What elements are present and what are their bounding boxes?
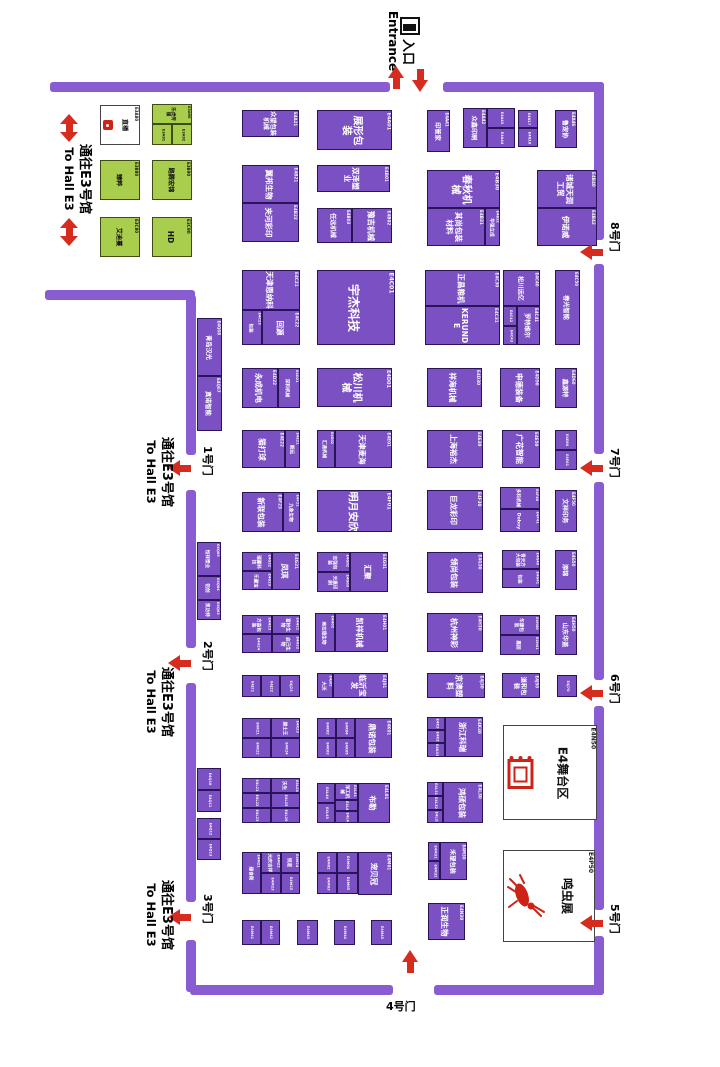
booth-code: E4C23 bbox=[257, 311, 262, 344]
booth-name: 元庆吉祥 bbox=[262, 853, 276, 872]
entrance-label-cn: 入口 bbox=[401, 39, 420, 65]
booth-E4Q03: E4Q03凯达特 bbox=[197, 600, 221, 620]
booth-code: E4Q08 bbox=[216, 319, 221, 375]
gate-label-1: 1号门 bbox=[200, 446, 216, 490]
booth-name: 多科机械 bbox=[501, 488, 535, 508]
booth-name: 乐虎传媒 bbox=[153, 105, 187, 123]
booth-E4A46: E4A46鲁宠协 bbox=[555, 110, 577, 148]
booth-E4H30: E4H30杭州神彩 bbox=[427, 613, 483, 652]
booth-code: E3B80 bbox=[134, 161, 139, 199]
booth-E4L31: E4L31 bbox=[427, 782, 443, 796]
booth-code: E4Q11 bbox=[207, 795, 211, 808]
booth-E4N50: E4N50E4舞台区 bbox=[503, 725, 597, 820]
booth-E4K02: E4K02 bbox=[317, 718, 336, 738]
booth-name: 直播 bbox=[113, 106, 134, 144]
booth-code: E4B22 bbox=[293, 204, 298, 241]
booth-code: E4B32 bbox=[495, 209, 500, 245]
booth-code: E4H01 bbox=[382, 614, 387, 651]
booth-name: 凤琪 bbox=[273, 553, 294, 589]
gate-label-4: 4号门 bbox=[386, 998, 416, 1014]
booth-code: E3A80 bbox=[134, 106, 139, 144]
booth-E4L24: E4L24沃生 bbox=[271, 778, 300, 793]
booth-code: E4Q03 bbox=[216, 601, 221, 619]
booth-name: 瑞赢科技 bbox=[243, 553, 267, 570]
booth-code: E4C30 bbox=[494, 271, 499, 305]
booth-E4B21: E4B21翼邦生物 bbox=[242, 165, 299, 203]
booth-name: 回源 bbox=[263, 311, 294, 344]
booth-E3B80: E3B80臻粹 bbox=[100, 160, 140, 200]
booth-name: 艾迪蔓 bbox=[101, 218, 134, 256]
to-hall-e3-cn: 通往E3号馆 bbox=[158, 437, 174, 507]
booth-name: 山东华盖 bbox=[556, 616, 571, 654]
booth-code: E4B40 bbox=[591, 171, 596, 207]
booth-E4G02: E4G02志强包装 bbox=[317, 552, 350, 572]
to-hall-e3-cn: 通往E3号馆 bbox=[158, 880, 174, 950]
booth-E4G03: E4G03天惠印刷 bbox=[317, 572, 350, 592]
booth-E3C90: E3C90HD bbox=[152, 217, 192, 257]
booth-name: 臻食帮 bbox=[243, 853, 256, 893]
hall-wall bbox=[50, 82, 390, 92]
entrance-door-icon bbox=[400, 17, 420, 35]
booth-name: 新联包装 bbox=[243, 493, 277, 531]
booth-E4D21: E4D21深和机械 bbox=[278, 368, 300, 408]
booth-name: 添锦 bbox=[556, 551, 571, 589]
booth-name: 明月安欣 bbox=[318, 491, 385, 531]
booth-code: E4N18 bbox=[526, 131, 530, 144]
booth-E4L01: E4L01布勒 bbox=[358, 783, 390, 823]
booth-code: E4F30 bbox=[477, 491, 482, 529]
booth-code: E4D50 bbox=[534, 369, 539, 406]
booth-E4H22: E4H22启己生物 bbox=[272, 634, 300, 653]
booth-code: E4L30 bbox=[477, 783, 482, 822]
booth-E4M44: E4M44 bbox=[334, 920, 355, 945]
booth-code: E4M43 bbox=[306, 926, 310, 939]
booth-name: 布勒 bbox=[359, 784, 384, 822]
booth-name: 凯祥机械 bbox=[336, 614, 382, 651]
booth-E4E30: E4E30上海裕杰 bbox=[427, 430, 483, 468]
booth-E4A44: E4A44 bbox=[487, 128, 515, 148]
booth-E3B90: E3B90路腾宏锦 bbox=[152, 160, 192, 200]
booth-E4Q04: E4Q04铝创 bbox=[197, 576, 221, 600]
booth-code: E4K21 bbox=[255, 722, 259, 734]
booth-E4L33: E4L33 bbox=[427, 810, 443, 823]
booth-name: 沃生 bbox=[272, 779, 295, 792]
booth-code: E4D01 bbox=[385, 369, 391, 406]
booth-name: 鲁宠协 bbox=[556, 111, 571, 147]
booth-code: E4A46 bbox=[571, 111, 576, 147]
booth-code: E4L42 bbox=[345, 801, 349, 811]
booth-code: E4M23 bbox=[269, 877, 273, 890]
booth-E4N17: E4N17 bbox=[518, 110, 538, 128]
booth-E4B22: E4B22夹河彩印 bbox=[242, 203, 299, 242]
booth-E4G22: E4G22瑞赢科技 bbox=[242, 552, 272, 571]
hall-wall bbox=[434, 985, 604, 995]
booth-name: 永成机电 bbox=[243, 369, 272, 407]
to-hall-e3-cn: 通往E3号馆 bbox=[76, 144, 92, 214]
booth-E4L26: E4L26 bbox=[271, 808, 300, 823]
booth-name: 道和包装 bbox=[503, 674, 534, 697]
booth-code: E4G40 bbox=[535, 551, 540, 568]
hall-wall bbox=[186, 490, 196, 648]
booth-code: E4M03 bbox=[325, 877, 329, 890]
booth-E4F40: E4F40多科机械 bbox=[500, 487, 540, 509]
booth-code: E4G21 bbox=[294, 553, 299, 589]
booth-code: E4J30 bbox=[479, 674, 484, 697]
booth-name: 凯达特 bbox=[198, 601, 216, 619]
booth-code: E4M05 bbox=[346, 877, 350, 890]
booth-E4G23: E4G23乐赢宝 bbox=[242, 571, 272, 590]
booth-code: E4J50 bbox=[534, 674, 539, 697]
booth-code: E4J02 bbox=[328, 674, 333, 697]
booth-code: E3B90 bbox=[186, 161, 191, 199]
booth-name: 展形包装 bbox=[318, 111, 385, 149]
booth-E4Q08: E4Q08青岛汉光 bbox=[197, 318, 222, 376]
hall-wall bbox=[186, 683, 196, 902]
booth-code: E4N30 bbox=[459, 904, 464, 939]
booth-name: 印管家 bbox=[428, 111, 444, 151]
booth-E4E60: E4E60 bbox=[555, 430, 577, 450]
to-hall-e3-label: 通往E3号馆To Hall E3 bbox=[140, 640, 178, 764]
booth-E4F30: E4F30巨龙彩印 bbox=[427, 490, 483, 530]
booth-code: E4M24 bbox=[295, 853, 300, 872]
live-badge-icon bbox=[103, 120, 113, 130]
booth-name: 真诺智能 bbox=[198, 377, 216, 430]
booth-code: E4L32 bbox=[433, 797, 437, 809]
booth-E4M25: E4M25 bbox=[281, 873, 300, 894]
booth-code: E4A44 bbox=[499, 132, 503, 144]
booth-code: E4M01 bbox=[386, 853, 391, 894]
booth-name: 诸城天润工贸 bbox=[538, 171, 591, 207]
booth-E4C01: E4C01宇杰科技 bbox=[317, 270, 395, 345]
booth-code: E4M21 bbox=[256, 853, 261, 893]
booth-name: 鸿硕包装 bbox=[444, 783, 477, 822]
booth-E4F21: E4F21九象生物 bbox=[283, 492, 300, 532]
booth-E4K05: E4K05 bbox=[336, 738, 355, 758]
gate-arrow-icon bbox=[402, 950, 418, 974]
booth-name: 臻粹 bbox=[101, 161, 134, 199]
booth-E4A01: E4A01展形包装 bbox=[317, 110, 392, 150]
booth-code: E4J21 bbox=[250, 681, 254, 692]
booth-code: E4A01 bbox=[385, 111, 391, 149]
booth-code: E4L44 bbox=[324, 787, 328, 799]
booth-E4A41: E4A41印管家 bbox=[427, 110, 450, 152]
booth-name: 铝创 bbox=[198, 577, 216, 599]
booth-code: E4C22 bbox=[294, 311, 299, 344]
booth-name: 富岭生物 bbox=[273, 616, 295, 633]
booth-code: E4A21 bbox=[293, 111, 298, 136]
booth-name: 浙江科瑞 bbox=[446, 718, 477, 756]
booth-code: E4Q07 bbox=[216, 377, 221, 430]
booth-name: 广花智能 bbox=[503, 431, 534, 467]
booth-E4L23: E4L23 bbox=[242, 808, 271, 823]
booth-E4G40: E4G40青天方大包装 bbox=[502, 550, 540, 569]
booth-name: 汇聚 bbox=[351, 553, 382, 591]
gate-label-6: 6号门 bbox=[607, 674, 623, 718]
booth-name: 包装 bbox=[243, 311, 257, 344]
booth-code: E4C41 bbox=[534, 307, 539, 344]
booth-code: E4Q04 bbox=[216, 577, 221, 599]
booth-name: 上海裕杰 bbox=[428, 431, 477, 467]
booth-E4D30: E4D30祥海机械 bbox=[427, 368, 482, 407]
booth-E4K04: E4K04 bbox=[336, 718, 355, 738]
booth-name: 九象生物 bbox=[284, 493, 295, 531]
booth-code: E4L33 bbox=[433, 811, 437, 823]
booth-E4K32: E4K32 bbox=[427, 730, 445, 743]
booth-E4L41: E4L41洋工机械 bbox=[335, 783, 358, 800]
booth-code: E4K03 bbox=[325, 742, 329, 754]
booth-E4H41: E4H41鑫固 bbox=[500, 635, 540, 655]
booth-name: 翼邦生物 bbox=[243, 166, 293, 202]
booth-code: E4M25 bbox=[289, 877, 293, 890]
booth-code: E4C43 bbox=[508, 329, 512, 341]
to-hall-e3-en: To Hall E3 bbox=[144, 883, 158, 946]
booth-code: E4K05 bbox=[344, 742, 348, 754]
booth-name: 乐赢宝 bbox=[243, 572, 267, 589]
booth-E4J50: E4J50道和包装 bbox=[502, 673, 540, 698]
booth-E4C50: E4C50春光智能 bbox=[555, 270, 580, 345]
booth-code: E4E21 bbox=[295, 431, 300, 467]
booth-E4C30: E4C30正昌粮机 bbox=[425, 270, 500, 306]
to-hall-e3-en: To Hall E3 bbox=[144, 440, 158, 503]
booth-code: E4B42 bbox=[591, 209, 596, 245]
booth-E4C22: E4C22回源 bbox=[262, 310, 300, 345]
booth-name: 其尚包装材料 bbox=[428, 209, 479, 245]
booth-E4M31: E4M31 bbox=[428, 842, 440, 861]
booth-name: 松川远亿 bbox=[504, 271, 534, 305]
booth-code: E4A42 bbox=[481, 109, 486, 147]
booth-code: E4H40 bbox=[535, 616, 540, 634]
booth-code: E4K32 bbox=[434, 731, 438, 743]
booth-name: 鑫源特 bbox=[556, 369, 571, 407]
exhibition-floorplan: 入口 Entrance E3A80直播E3A90乐虎传媒E3A91E3A92E3… bbox=[0, 0, 720, 1067]
booth-name: 文祥印务 bbox=[556, 491, 571, 531]
booth-code: E4D30 bbox=[476, 369, 481, 406]
booth-name: 猫打球 bbox=[243, 431, 279, 467]
booth-E4C41: E4C41罗特维尔 bbox=[517, 306, 540, 345]
booth-E4M05: E4M05 bbox=[337, 873, 358, 894]
booth-code: E4H41 bbox=[535, 636, 540, 654]
booth-name: 华康包装 bbox=[501, 616, 535, 634]
booth-code: E4L24 bbox=[295, 779, 300, 792]
to-hall-e3-en: To Hall E3 bbox=[62, 147, 76, 210]
booth-code: E4M41 bbox=[250, 926, 254, 939]
hall-wall bbox=[190, 985, 393, 995]
booth-code: E4Q05 bbox=[216, 543, 221, 575]
booth-E4B42: E4B42伊诺威 bbox=[537, 208, 597, 246]
booth-code: E4C21 bbox=[294, 271, 299, 309]
booth-code: E4M02 bbox=[325, 856, 329, 869]
booth-E4M22: E4M22元庆吉祥 bbox=[261, 852, 281, 873]
booth-code: E4E30 bbox=[477, 431, 482, 467]
booth-code: E4D22 bbox=[272, 369, 277, 407]
booth-code: E4G03 bbox=[345, 573, 350, 591]
gate-label-3: 3号门 bbox=[200, 894, 216, 938]
booth-E4G30: E4G30领尚包装 bbox=[427, 552, 483, 593]
booth-E4Q05: E4Q05恒祥塑业 bbox=[197, 542, 221, 576]
booth-code: E4A43 bbox=[499, 112, 503, 124]
booth-E4E61: E4E61 bbox=[555, 450, 577, 470]
booth-E4J23: E4J23 bbox=[280, 675, 300, 697]
booth-code: E4B01 bbox=[384, 166, 389, 191]
booth-code: E4B21 bbox=[293, 166, 298, 202]
booth-code: E4H50 bbox=[571, 616, 576, 654]
booth-E4K22: E4K22 bbox=[242, 738, 271, 758]
booth-E4M24: E4M24锐道 bbox=[281, 852, 300, 873]
booth-name: 华强立成 bbox=[486, 209, 495, 245]
booth-E4E22: E4E22猫打球 bbox=[242, 430, 285, 468]
booth-name: 领尚包装 bbox=[428, 553, 477, 592]
booth-code: E4H24 bbox=[255, 637, 259, 650]
booth-E4H24: E4H24 bbox=[242, 634, 272, 653]
booth-code: E4E60 bbox=[564, 434, 568, 446]
booth-E4K21: E4K21 bbox=[242, 718, 271, 738]
booth-name: 夹河彩印 bbox=[243, 204, 293, 241]
booth-name: 宇杰科技 bbox=[318, 271, 387, 344]
booth-name: 包装 bbox=[503, 570, 535, 587]
booth-E4L42: E4L42 bbox=[335, 800, 358, 811]
gate-arrow-icon bbox=[580, 460, 604, 476]
booth-E4K30: E4K30浙江科瑞 bbox=[445, 717, 483, 757]
booth-code: E4G23 bbox=[267, 572, 272, 589]
booth-code: E4F21 bbox=[295, 493, 300, 531]
booth-code: E4A41 bbox=[444, 111, 449, 151]
booth-code: E3A90 bbox=[187, 105, 192, 123]
booth-name: 天津恩纳科 bbox=[243, 271, 294, 309]
booth-E4E01: E4E01天津麦海 bbox=[335, 430, 392, 468]
gate-label-7: 7号门 bbox=[607, 448, 623, 492]
to-hall-e3-en: To Hall E3 bbox=[144, 670, 158, 733]
booth-E4M01: E4M01宠贝冠 bbox=[358, 852, 392, 895]
booth-code: E4E02 bbox=[330, 431, 335, 467]
hall-wall bbox=[186, 295, 196, 455]
booth-E4H40: E4H40华康包装 bbox=[500, 615, 540, 635]
booth-name: E4舞台区 bbox=[534, 726, 589, 819]
booth-code: E4H02 bbox=[330, 614, 335, 651]
booth-name: 罗特维尔 bbox=[518, 307, 534, 344]
gate-arrow-icon bbox=[580, 915, 604, 931]
cricket-icon bbox=[504, 851, 546, 941]
to-hall-e3-label: 通往E3号馆To Hall E3 bbox=[54, 142, 100, 216]
booth-E4L44: E4L44 bbox=[317, 783, 335, 803]
booth-code: E4G50 bbox=[571, 551, 576, 589]
booth-code: E4L25 bbox=[284, 795, 288, 807]
booth-E4Q12: E4Q12 bbox=[197, 818, 221, 839]
booth-code: E4E01 bbox=[386, 431, 391, 467]
booth-name: 深和机械 bbox=[279, 369, 295, 407]
booth-name: 京澳塑料 bbox=[428, 674, 479, 697]
booth-code: E3A91 bbox=[160, 128, 164, 140]
booth-code: E4B02 bbox=[386, 209, 391, 242]
booth-name: 巨龙彩印 bbox=[428, 491, 477, 529]
booth-name: 朝远 bbox=[286, 431, 295, 467]
booth-name: 锐道 bbox=[282, 853, 295, 872]
booth-E4M21: E4M21臻食帮 bbox=[242, 852, 261, 894]
booth-E4C40: E4C40松川远亿 bbox=[503, 270, 540, 306]
booth-code: E4C42 bbox=[508, 310, 512, 322]
booth-E4C43: E4C43 bbox=[503, 326, 517, 345]
booth-E4L43: E4L43 bbox=[335, 811, 358, 823]
booth-E3A90: E3A90乐虎传媒 bbox=[152, 104, 192, 124]
booth-name: 天惠印刷 bbox=[318, 573, 345, 591]
stage-icon bbox=[504, 726, 534, 819]
booth-code: E4F40 bbox=[535, 488, 540, 508]
gate-arrow-icon bbox=[580, 685, 604, 701]
to-hall-e3-label: 通往E3号馆To Hall E3 bbox=[140, 410, 178, 534]
booth-E4N18: E4N18 bbox=[518, 128, 538, 147]
booth-code: E4L26 bbox=[284, 810, 288, 822]
booth-name: 汇通机械 bbox=[318, 431, 330, 467]
booth-E4B02: E4B02豫吉机械 bbox=[352, 208, 392, 243]
booth-code: E4M31 bbox=[432, 845, 436, 858]
entrance-arrow-out-icon bbox=[412, 68, 428, 92]
to-hall-e3-label: 通往E3号馆To Hall E3 bbox=[140, 853, 178, 977]
booth-E3A80: E3A80直播 bbox=[100, 105, 140, 145]
booth-E4K23: E4K23膜士王 bbox=[271, 718, 300, 738]
booth-E4C23: E4C23包装 bbox=[242, 310, 262, 345]
booth-code: E4Q10 bbox=[207, 773, 211, 786]
booth-E4J21: E4J21 bbox=[242, 675, 261, 697]
booth-E4K01: E4K01鼎诺包装 bbox=[355, 718, 392, 758]
booth-name: 双泽塑业 bbox=[318, 166, 384, 191]
booth-name: 众望包装机械 bbox=[243, 111, 293, 136]
booth-name: 正润生物 bbox=[429, 904, 459, 939]
booth-E4M02: E4M02 bbox=[317, 852, 337, 873]
booth-name: 天津麦海 bbox=[336, 431, 386, 467]
booth-code: E4D21 bbox=[295, 369, 300, 407]
booth-code: E4H22 bbox=[295, 635, 300, 652]
booth-E4M42: E4M42 bbox=[261, 920, 280, 945]
booth-code: E4M44 bbox=[343, 926, 347, 939]
booth-code: E4B31 bbox=[479, 209, 484, 245]
booth-code: E4C40 bbox=[534, 271, 539, 305]
booth-name: 春光智能 bbox=[556, 271, 574, 344]
booth-code: E4M30 bbox=[461, 843, 466, 879]
hall-wall bbox=[45, 290, 195, 300]
booth-code: E4Q13 bbox=[207, 843, 211, 856]
booth-E4G41: E4G41包装 bbox=[502, 569, 540, 588]
booth-E4A42: E4A42众鑫印刷 bbox=[463, 108, 487, 148]
booth-E4Q11: E4Q11 bbox=[197, 790, 221, 812]
booth-name: 美拉德生物 bbox=[316, 614, 330, 651]
booth-code: E4N17 bbox=[526, 113, 530, 126]
booth-code: E4Q12 bbox=[207, 822, 211, 835]
booth-E4F41: E4F41Doboy bbox=[500, 509, 540, 532]
booth-name: 志强包装 bbox=[318, 553, 345, 571]
booth-E4M23: E4M23 bbox=[261, 873, 281, 894]
booth-E4F23: E4F23新联包装 bbox=[242, 492, 283, 532]
booth-code: E4J70 bbox=[565, 681, 569, 692]
booth-code: E4B03 bbox=[346, 209, 351, 242]
booth-code: E4M22 bbox=[276, 853, 281, 872]
booth-name: 任远机械 bbox=[318, 209, 346, 242]
booth-code: E4L41 bbox=[353, 784, 358, 799]
gate-label-2: 2号门 bbox=[200, 641, 216, 685]
booth-code: E4F23 bbox=[277, 493, 282, 531]
booth-code: E4E50 bbox=[534, 431, 539, 467]
booth-E4A21: E4A21众望包装机械 bbox=[242, 110, 299, 137]
booth-E4J02: E4J02大沃 bbox=[317, 673, 333, 698]
booth-E4G01: E4G01汇聚 bbox=[350, 552, 388, 592]
hall-wall bbox=[594, 264, 604, 454]
to-hall-double-arrow-icon bbox=[60, 218, 78, 246]
booth-code: E4G01 bbox=[382, 553, 387, 591]
booth-name: 春秋机械 bbox=[428, 171, 493, 207]
booth-name: 鼎诺包装 bbox=[356, 719, 386, 757]
booth-E4Q13: E4Q13 bbox=[197, 839, 221, 860]
booth-E4M32: E4M32 bbox=[428, 861, 440, 880]
booth-E4L32: E4L32 bbox=[427, 796, 443, 810]
booth-code: E4K02 bbox=[325, 722, 329, 734]
